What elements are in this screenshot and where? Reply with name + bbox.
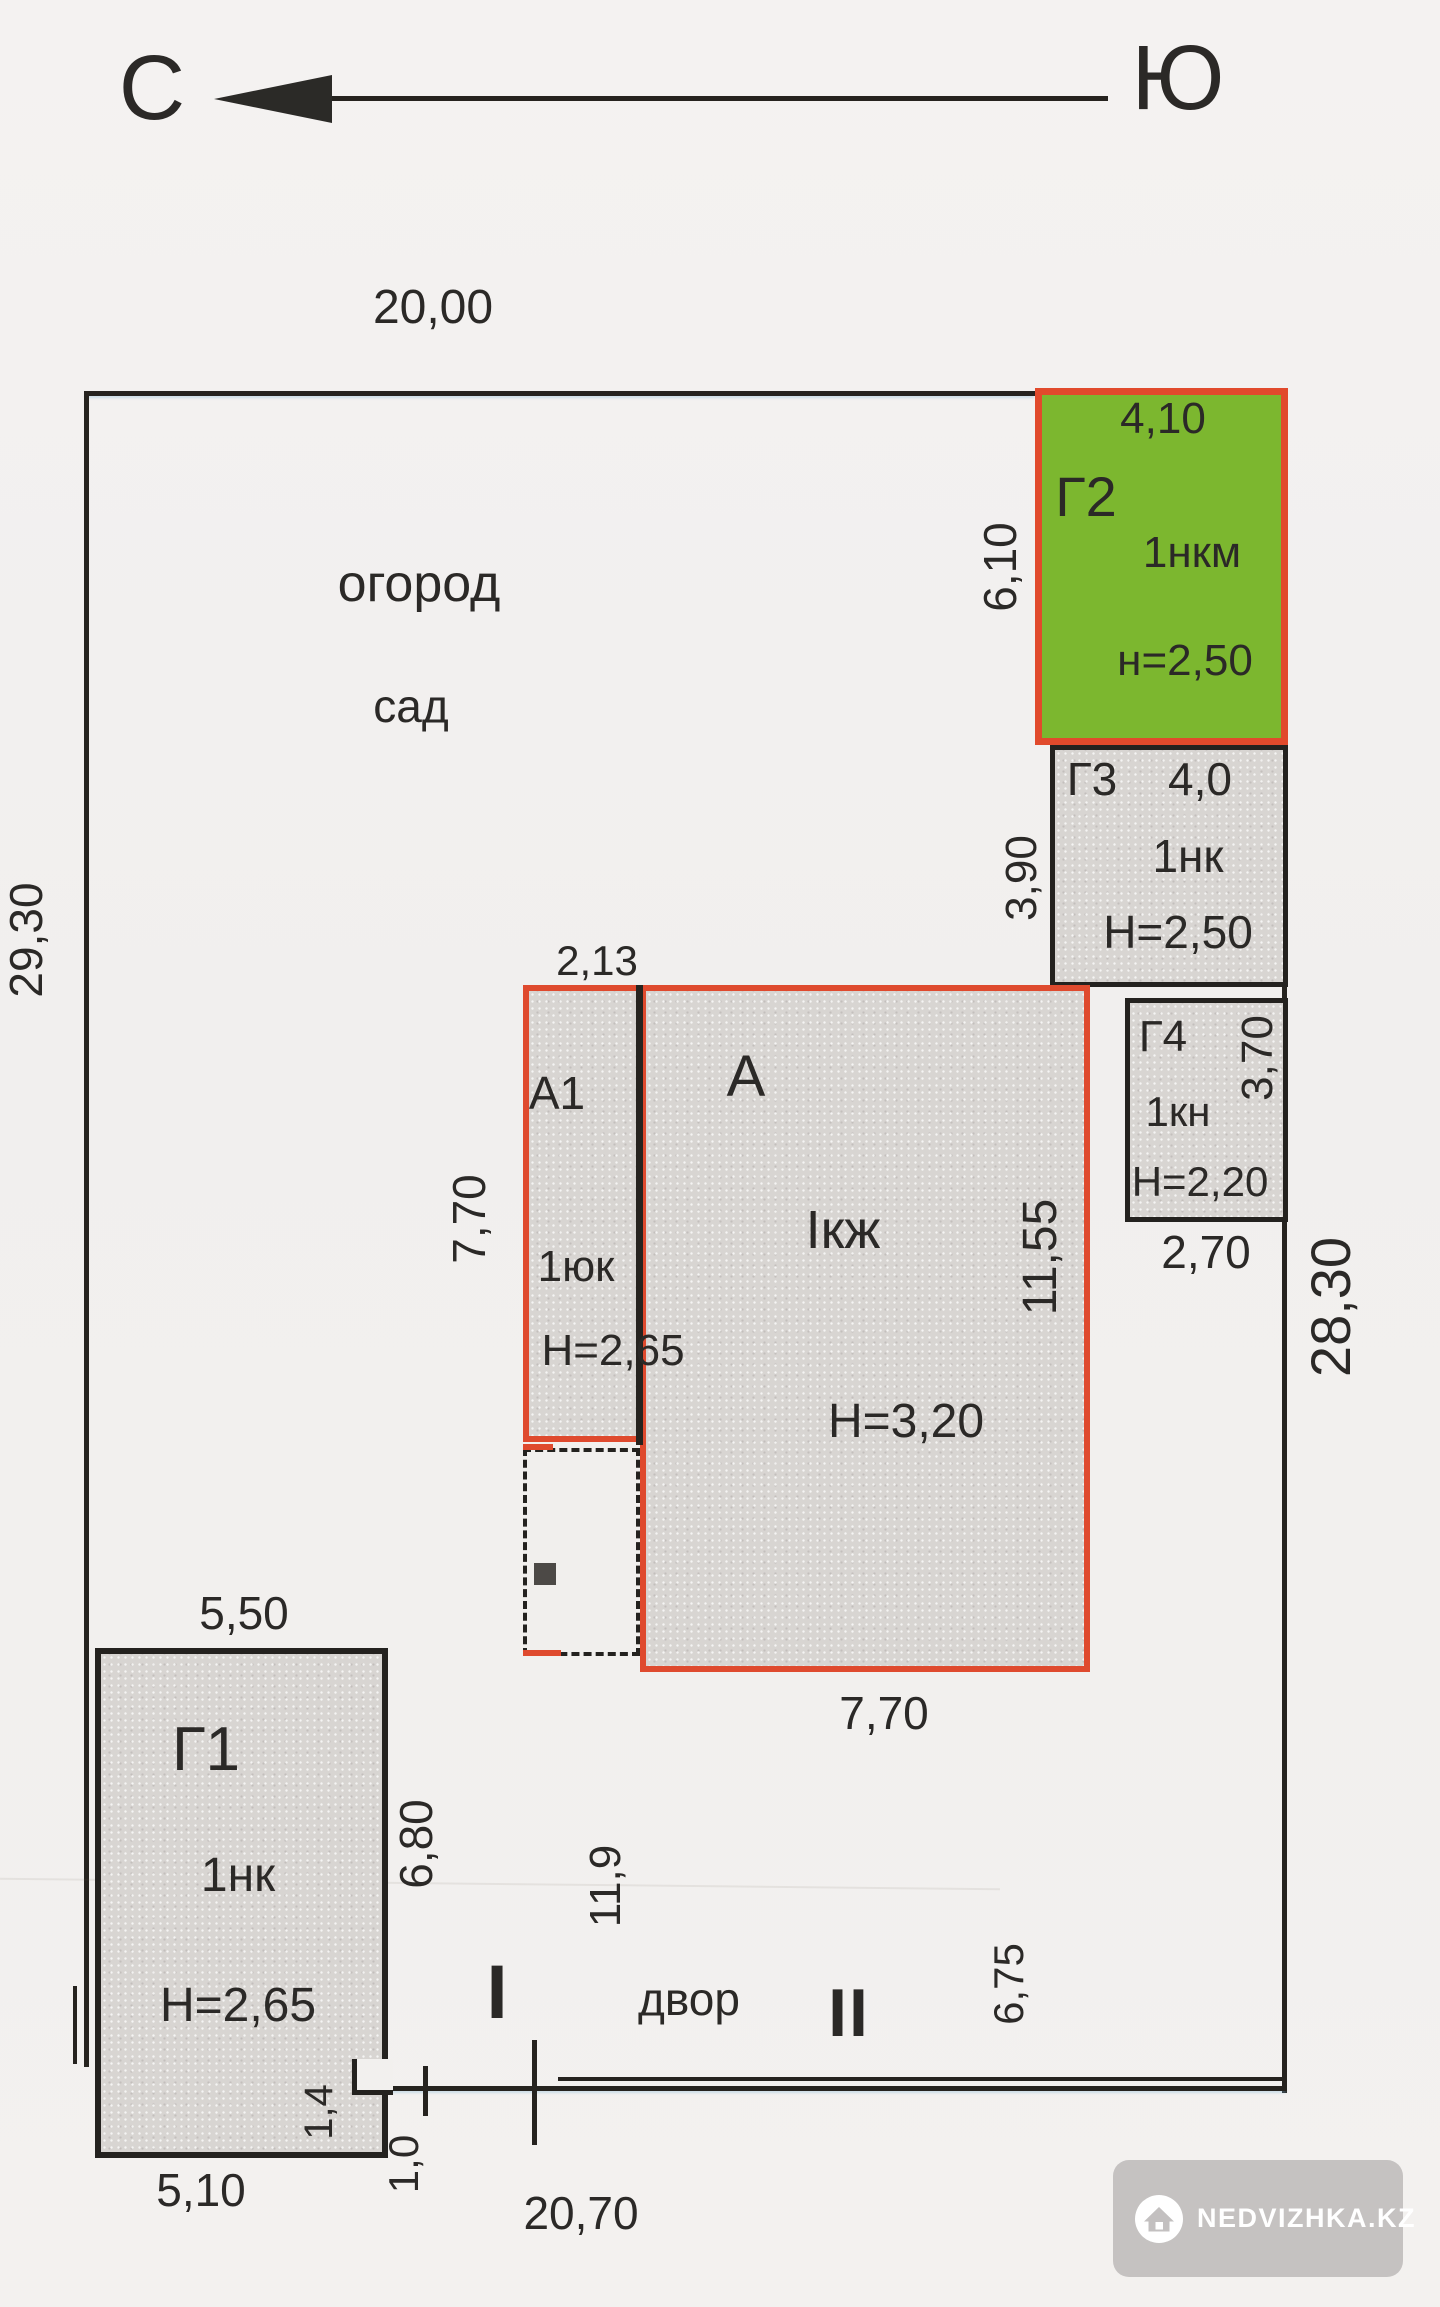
dim-yard-width: 11,9 — [584, 1845, 628, 1927]
dim-fence-bottom: 20,70 — [523, 2190, 638, 2236]
dim-g1-notch: 1,4 — [299, 2084, 339, 2140]
label-a-id: А — [727, 1048, 766, 1106]
dim-g1-depth: 6,80 — [393, 1799, 439, 1889]
label-a1-ceiling: Н=2,65 — [541, 1329, 684, 1373]
building-g1 — [95, 1648, 388, 2158]
area-label-dvor: двор — [638, 1976, 740, 2022]
watermark-brand-text: NEDVIZHKA.KZ — [1197, 2203, 1416, 2234]
label-a-ceiling: Н=3,20 — [828, 1398, 984, 1446]
dim-gate-gap: 1,0 — [383, 2135, 425, 2193]
gate-marker-ii: II — [828, 1979, 870, 2047]
dim-g4-depth: 3,70 — [1236, 1015, 1280, 1101]
north-arrow-head — [214, 75, 332, 123]
dim-plot-width-top: 20,00 — [373, 284, 493, 332]
compass-south-label: Ю — [1132, 32, 1225, 124]
dim-a-width: 7,70 — [839, 1690, 929, 1736]
dim-g3-depth: 3,90 — [1000, 835, 1044, 921]
g1-door-notch — [352, 2059, 393, 2095]
porch-pillar — [534, 1563, 556, 1585]
building-a — [640, 985, 1090, 1672]
wall-a1-a-divider — [636, 985, 643, 1445]
dim-a1-depth: 7,70 — [446, 1174, 492, 1264]
gate-marker-i: I — [486, 1955, 507, 2031]
house-icon — [1135, 2195, 1183, 2243]
dim-g4-width: 2,70 — [1161, 1229, 1251, 1275]
dim-g1-width: 5,50 — [199, 1590, 289, 1636]
fence-line-lower — [390, 2086, 1287, 2091]
label-g3-ceiling: Н=2,50 — [1103, 909, 1253, 955]
label-g4-id: Г4 — [1139, 1015, 1187, 1059]
plot-boundary-left — [84, 391, 89, 2067]
dim-plot-side-left: 29,30 — [3, 882, 49, 997]
area-label-sad: сад — [373, 683, 448, 729]
dim-a-depth: 11,55 — [1017, 1199, 1065, 1316]
dim-a1-width: 2,13 — [556, 940, 638, 982]
label-a-floors: Iкж — [806, 1203, 881, 1257]
fence-tick-gate — [423, 2066, 428, 2116]
fence-line-upper — [558, 2077, 1287, 2081]
dim-yard-depth: 6,75 — [988, 1943, 1030, 2025]
label-g4-ceiling: Н=2,20 — [1132, 1161, 1269, 1203]
dim-g2-depth: 6,10 — [977, 522, 1023, 612]
label-g2-code: 1нкм — [1143, 531, 1241, 575]
dim-plot-side-right: 28,30 — [1303, 1237, 1359, 1377]
porch-red-mark-bottom — [523, 1650, 561, 1656]
label-g2-id: Г2 — [1055, 469, 1116, 525]
site-plan: С Ю 20,00 29,30 28,30 огород сад двор 4,… — [0, 0, 1440, 2307]
dim-g1-bottom-width: 5,10 — [156, 2167, 246, 2213]
label-g3-id: Г3 — [1067, 756, 1118, 802]
nedvizhka-watermark: NEDVIZHKA.KZ — [1113, 2160, 1403, 2277]
plot-boundary-top — [84, 391, 1035, 396]
label-g1-code: 1нк — [201, 1852, 275, 1900]
label-g1-id: Г1 — [172, 1719, 240, 1781]
label-a1-id: А1 — [529, 1070, 585, 1116]
north-arrow-shaft — [332, 96, 1108, 101]
label-g3-code: 1нк — [1152, 833, 1223, 879]
label-g2-ceiling: н=2,50 — [1117, 639, 1253, 683]
dim-g3-width: 4,0 — [1168, 756, 1232, 802]
label-g1-ceiling: Н=2,65 — [160, 1982, 316, 2030]
plot-boundary-left-double — [73, 1986, 77, 2064]
porch-red-mark-top — [523, 1444, 553, 1450]
compass-north-label: С — [119, 42, 185, 134]
label-g4-code: 1кн — [1146, 1091, 1211, 1133]
label-a1-code: 1юк — [538, 1245, 615, 1289]
fence-tick-left — [532, 2040, 537, 2145]
porch-outline — [523, 1448, 640, 1656]
area-label-ogorod: огород — [338, 558, 501, 610]
dim-g2-width: 4,10 — [1120, 397, 1206, 441]
